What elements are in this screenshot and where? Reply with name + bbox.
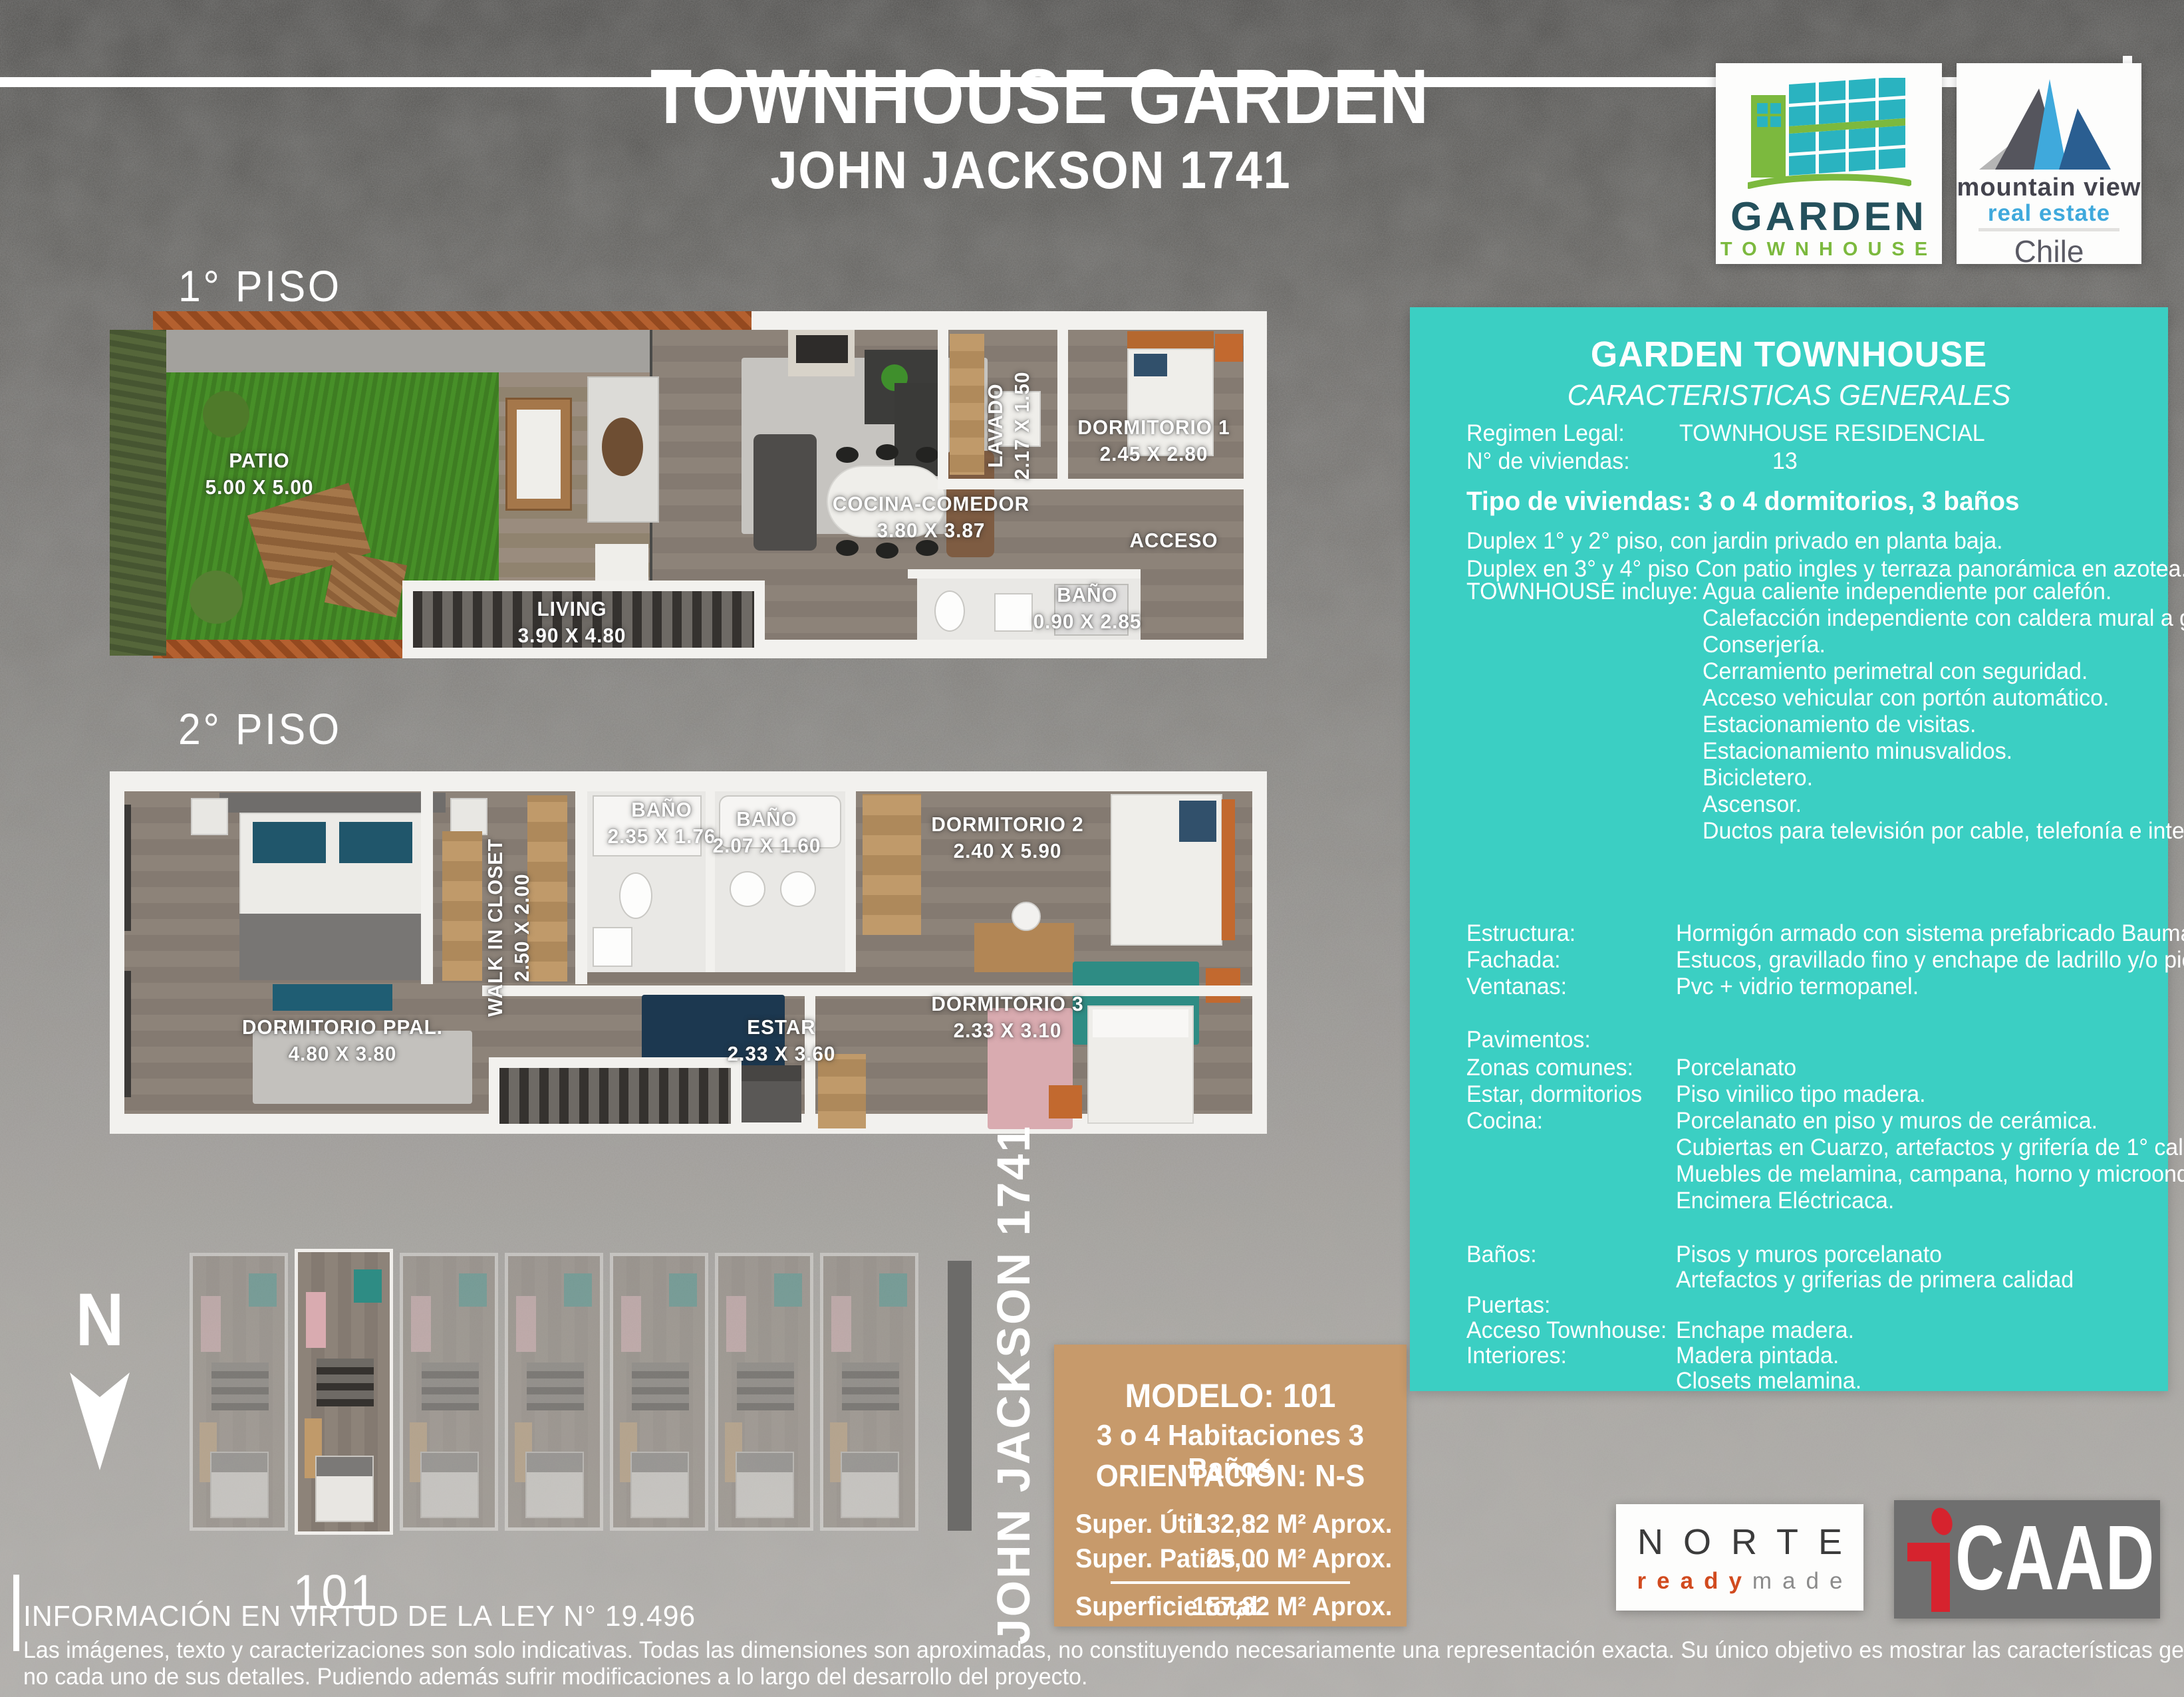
specs-subtitle: CARACTERISTICAS GENERALES — [1425, 379, 2153, 412]
duplex-line1: Duplex 1° y 2° piso, con jardin privado … — [1466, 528, 2003, 555]
norte-ready: ready — [1637, 1568, 1752, 1594]
spec-label: Acceso Townhouse: — [1466, 1317, 1667, 1344]
north-indicator: N — [60, 1277, 140, 1476]
pavimentos-label: Pavimentos: — [1466, 1027, 1591, 1053]
north-label: N — [64, 1277, 136, 1363]
site-unit — [190, 1253, 288, 1531]
floor1-plan: PATIO5.00 X 5.00 LIVING3.90 X 4.80 COCIN… — [110, 311, 1267, 658]
nightstand — [1049, 1085, 1082, 1118]
viviendas-value: 13 — [1772, 448, 1798, 475]
chair — [876, 444, 898, 460]
room-label-walkincloset: WALK IN CLOSET2.50 X 2.00 — [482, 839, 535, 1017]
model-row-value: 132,82 M² Aprox. — [1192, 1509, 1392, 1539]
incluye-label: TOWNHOUSE incluye: — [1466, 579, 1698, 605]
bush — [203, 391, 249, 438]
blanket — [239, 914, 426, 980]
sink — [730, 871, 765, 907]
spec-value: Cubiertas en Cuarzo, artefactos y grifer… — [1676, 1134, 2184, 1161]
mountain-view-logo: mountain view real estate Chile — [1957, 63, 2141, 264]
bed-frame — [1222, 799, 1235, 940]
norte-readymade-logo: NORTE readymade — [1616, 1504, 1863, 1611]
wall — [908, 569, 1141, 579]
nightstand — [450, 798, 487, 835]
footer-tick — [13, 1575, 19, 1651]
mountain-view-country: Chile — [1957, 233, 2141, 269]
room-label-bano1: BAÑO0.90 X 2.85 — [1033, 582, 1142, 635]
spec-label: Ventanas: — [1466, 974, 1567, 1000]
toilet — [934, 590, 965, 632]
wall — [110, 771, 1267, 791]
model-divider — [1111, 1581, 1350, 1584]
spec-value: Piso vinilico tipo madera. — [1676, 1081, 1926, 1108]
spec-value: Hormigón armado con sistema prefabricado… — [1676, 920, 2184, 947]
room-label-dormitorio3: DORMITORIO 32.33 X 3.10 — [931, 991, 1083, 1044]
pillow — [1134, 354, 1167, 376]
spec-label: Estar, dormitorios — [1466, 1081, 1642, 1108]
terracotta-pavers — [153, 311, 751, 330]
incluye-item: Conserjería. — [1703, 632, 1826, 658]
spec-value: Encimera Eléctricaca. — [1676, 1188, 1894, 1214]
site-unit — [610, 1253, 708, 1531]
bush — [190, 571, 243, 624]
pillow — [1179, 801, 1216, 842]
spec-label: Baños: — [1466, 1241, 1537, 1268]
model-box: MODELO: 101 3 o 4 Habitaciones 3 Baños O… — [1054, 1345, 1407, 1627]
regimen-label: Regimen Legal: — [1466, 420, 1625, 447]
pillow — [1093, 1009, 1188, 1037]
stool — [595, 544, 648, 584]
mountain-icon — [1973, 76, 2125, 170]
footer-line2: Las imágenes, texto y caracterizaciones … — [23, 1637, 2184, 1664]
wall — [751, 640, 1267, 658]
wardrobe — [863, 794, 921, 935]
spec-value: Madera pintada. — [1676, 1343, 1839, 1369]
wall — [575, 791, 587, 984]
spec-value: Muebles de melamina, campana, horno y mi… — [1676, 1161, 2184, 1188]
wall — [421, 791, 433, 984]
brochure-page: TOWNHOUSE GARDEN JOHN JACKSON 1741 GARDE… — [0, 0, 2184, 1697]
room-label-dormitorio2: DORMITORIO 22.40 X 5.90 — [931, 811, 1083, 864]
wall — [1057, 330, 1068, 489]
spec-label: Zonas comunes: — [1466, 1055, 1633, 1081]
spec-value: Porcelanato en piso y muros de cerámica. — [1676, 1108, 2098, 1134]
spec-label: Puertas: — [1466, 1292, 1550, 1319]
pillow — [339, 822, 412, 863]
site-unit-101 — [295, 1249, 393, 1535]
wall — [482, 985, 1267, 996]
incluye-item: Ascensor. — [1703, 791, 1802, 818]
mountain-view-line1: mountain view — [1957, 174, 2141, 202]
wall — [110, 771, 124, 1134]
spec-value: Pvc + vidrio termopanel. — [1676, 974, 1919, 1000]
room-label-cocina: COCINA-COMEDOR3.80 X 3.87 — [833, 491, 1029, 544]
garden-logo-sub: TOWNHOUSE — [1716, 239, 1942, 261]
model-row-label: Super. Útil — [1075, 1509, 1200, 1539]
hedge — [110, 330, 166, 656]
bench — [273, 984, 392, 1011]
garden-logo-name: GARDEN — [1714, 194, 1945, 239]
incluye-item: Bicicletero. — [1703, 765, 1813, 791]
norte-sub: readymade — [1616, 1568, 1863, 1595]
sofa — [753, 434, 817, 551]
norte-made: made — [1752, 1568, 1853, 1594]
incluye-item: Estacionamiento minusvalidos. — [1703, 738, 2012, 765]
room-label-bano-master: BAÑO2.35 X 1.76 — [608, 797, 716, 850]
wall — [938, 479, 1254, 489]
floor2-plan: DORMITORIO PPAL.4.80 X 3.80 WALK IN CLOS… — [110, 771, 1267, 1134]
spec-value: Porcelanato — [1676, 1055, 1796, 1081]
floor2-heading: 2° PISO — [178, 704, 342, 754]
vanity — [593, 927, 632, 967]
wall — [845, 791, 856, 972]
room-label-dormitorio1: DORMITORIO 12.45 X 2.80 — [1077, 414, 1230, 467]
street-strip — [948, 1261, 972, 1531]
site-unit — [715, 1253, 813, 1531]
site-plan — [190, 1249, 974, 1541]
balcony-door — [124, 805, 131, 931]
chair — [876, 543, 898, 559]
spec-label: Cocina: — [1466, 1108, 1543, 1134]
north-arrow-icon — [67, 1369, 133, 1476]
footer-line3: no cada uno de sus detalles. Pudiendo ad… — [23, 1664, 1087, 1690]
floor1-heading: 1° PISO — [178, 261, 342, 311]
nightstand — [1215, 334, 1243, 362]
specs-title: GARDEN TOWNHOUSE — [1425, 334, 2153, 375]
mountain-view-line2: real estate — [1957, 200, 2141, 227]
table-decor — [602, 418, 643, 476]
garden-building-icon — [1748, 78, 1911, 192]
street-label: JOHN JACKSON 1741 — [987, 1124, 1040, 1644]
cooktop — [796, 335, 848, 363]
toilet — [619, 872, 652, 919]
site-unit — [820, 1253, 918, 1531]
page-subtitle: JOHN JACKSON 1741 — [642, 140, 1420, 201]
incluye-item: Estacionamiento de visitas. — [1703, 712, 1976, 738]
room-label-acceso: ACCESO — [1129, 527, 1218, 554]
incluye-item: Acceso vehicular con portón automático. — [1703, 685, 2109, 712]
incluye-item: Calefacción independiente con caldera mu… — [1703, 605, 2184, 632]
stairs — [499, 1068, 731, 1124]
chair — [836, 447, 859, 463]
spec-value: Enchape madera. — [1676, 1317, 1854, 1344]
site-unit — [505, 1253, 603, 1531]
pillow — [253, 822, 326, 863]
model-line3: ORIENTACIÓN: N-S — [1063, 1458, 1398, 1494]
oven-column — [894, 383, 941, 476]
incluye-item: Cerramiento perimetral con seguridad. — [1703, 658, 2088, 685]
spec-value: Closets melamina. — [1676, 1368, 1861, 1394]
nightstand — [191, 798, 228, 835]
tipo-line: Tipo de viviendas: 3 o 4 dormitorios, 3 … — [1466, 488, 2020, 515]
spec-value: Estucos, gravillado fino y enchape de la… — [1676, 947, 2184, 974]
spec-label: Interiores: — [1466, 1343, 1567, 1369]
room-label-estar: ESTAR2.33 X 3.60 — [728, 1014, 836, 1067]
vanity — [994, 593, 1033, 632]
laundry-cabinet — [950, 334, 984, 475]
wall — [1252, 771, 1267, 1134]
viviendas-label: N° de viviendas: — [1466, 448, 1630, 475]
icaad-logo: CAAD — [1894, 1500, 2160, 1619]
model-row-value: 25,00 M² Aprox. — [1206, 1544, 1392, 1574]
page-title: TOWNHOUSE GARDEN — [650, 52, 1411, 141]
desk-chair — [1012, 902, 1041, 931]
closet — [442, 831, 482, 981]
room-label-lavado: LAVADO2.17 X 1.50 — [982, 372, 1035, 480]
chair — [916, 447, 938, 463]
sofa-cushion — [517, 410, 561, 499]
room-label-dormppal: DORMITORIO PPAL.4.80 X 3.80 — [242, 1014, 443, 1067]
icaad-i-icon — [1903, 1504, 1963, 1615]
incluye-item: Ductos para televisión por cable, telefo… — [1703, 818, 2184, 845]
garden-townhouse-logo: GARDEN TOWNHOUSE — [1716, 63, 1942, 264]
site-unit — [400, 1253, 498, 1531]
mountain-view-divider — [1979, 228, 2119, 231]
incluye-item: Agua caliente independiente por calefón. — [1703, 579, 2112, 605]
sink — [780, 871, 816, 907]
balcony-door — [124, 971, 131, 1097]
norte-name: NORTE — [1616, 1521, 1863, 1563]
specs-panel: GARDEN TOWNHOUSE CARACTERISTICAS GENERAL… — [1410, 307, 2168, 1391]
model-total-value: 157,82 M² Aprox. — [1192, 1592, 1392, 1622]
model-title: MODELO: 101 — [1063, 1376, 1398, 1415]
spec-label: Fachada: — [1466, 947, 1561, 974]
room-label-living: LIVING3.90 X 4.80 — [518, 596, 626, 649]
footer-line1: INFORMACIÓN EN VIRTUD DE LA LEY N° 19.49… — [23, 1600, 696, 1633]
wall — [938, 330, 948, 489]
room-label-patio: PATIO5.00 X 5.00 — [205, 448, 314, 501]
icaad-caad: CAAD — [1955, 1505, 2155, 1611]
headboard — [219, 793, 446, 813]
spec-label: Estructura: — [1466, 920, 1575, 947]
wall — [751, 311, 1267, 330]
room-label-bano2: BAÑO2.07 X 1.60 — [713, 806, 821, 859]
spec-value: Pisos y muros porcelanato — [1676, 1241, 1942, 1268]
headboard — [1127, 331, 1214, 348]
spec-value: Artefactos y griferias de primera calida… — [1676, 1267, 2074, 1293]
regimen-value: TOWNHOUSE RESIDENCIAL — [1679, 420, 1985, 447]
